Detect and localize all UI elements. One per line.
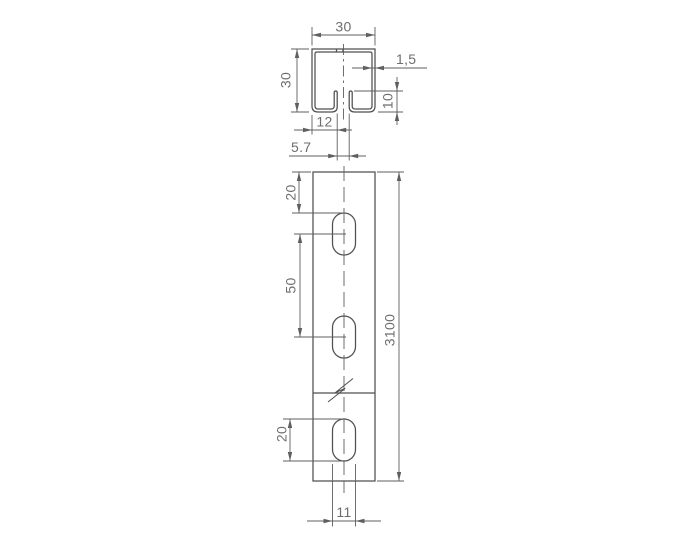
arrowhead	[375, 66, 384, 70]
arrowhead	[328, 154, 337, 158]
arrowhead	[295, 103, 299, 112]
dim-outer-width-label: 30	[335, 19, 351, 35]
arrowhead	[366, 33, 375, 37]
arrowhead	[298, 328, 302, 337]
arrowhead	[324, 519, 333, 523]
dim-outer-height-label: 30	[278, 72, 294, 88]
dim-slot-pitch-label: 50	[283, 277, 299, 293]
arrowhead	[337, 128, 346, 132]
front-view	[313, 166, 375, 493]
arrowhead	[297, 204, 301, 213]
dim-outer-height: 30	[278, 49, 310, 112]
dim-total-length-label: 3100	[382, 314, 398, 346]
dim-end-to-first-slot-label: 20	[283, 184, 299, 200]
dim-slot-length-label: 20	[274, 426, 290, 442]
arrowhead	[312, 33, 321, 37]
arrowhead	[295, 49, 299, 58]
arrowhead	[395, 112, 399, 121]
dim-lip-height-label: 10	[380, 93, 396, 109]
dim-edge-to-slot-label: 12	[316, 114, 332, 130]
section-view	[312, 44, 375, 122]
dim-total-length: 3100	[377, 172, 404, 481]
dim-lip-height: 10	[354, 77, 403, 125]
technical-drawing-canvas: 30 30 1,5 10 12 5.7	[0, 0, 700, 550]
dim-slot-opening-label: 5.7	[291, 139, 311, 155]
arrowhead	[363, 66, 372, 70]
dim-wall-thickness-label: 1,5	[396, 51, 416, 67]
dim-outer-width: 30	[312, 19, 375, 46]
dim-slot-width-label: 11	[336, 504, 351, 520]
arrowhead	[303, 128, 312, 132]
arrowhead	[288, 452, 292, 461]
arrowhead	[397, 172, 401, 181]
arrowhead	[298, 234, 302, 243]
arrowhead	[397, 472, 401, 481]
arrowhead	[356, 519, 365, 523]
arrowhead	[395, 82, 399, 91]
drawing-svg: 30 30 1,5 10 12 5.7	[0, 0, 700, 550]
arrowhead	[349, 154, 358, 158]
arrowhead	[297, 172, 301, 181]
dim-wall-thickness: 1,5	[352, 51, 427, 70]
